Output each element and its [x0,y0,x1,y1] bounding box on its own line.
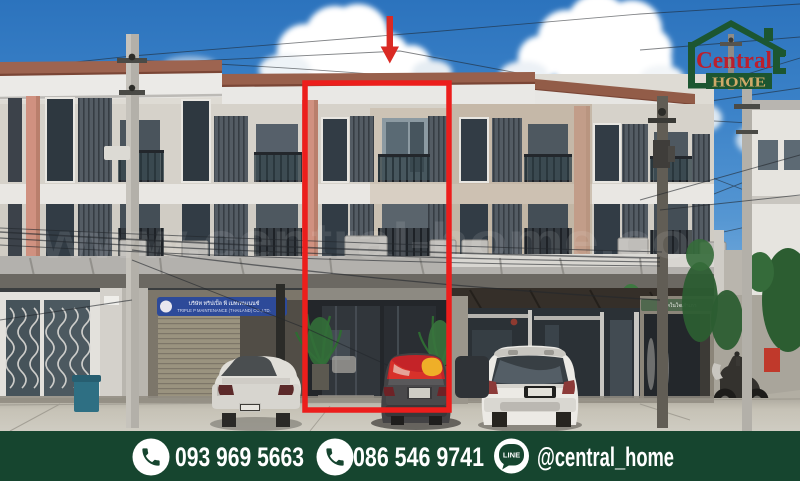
svg-text:LINE: LINE [503,451,520,460]
svg-text:086 546 9741: 086 546 9741 [353,442,484,472]
svg-text:Central: Central [696,48,772,74]
svg-text:@central_home: @central_home [537,442,674,472]
svg-text:HOME: HOME [712,75,766,90]
svg-text:093 969 5663: 093 969 5663 [175,442,304,472]
